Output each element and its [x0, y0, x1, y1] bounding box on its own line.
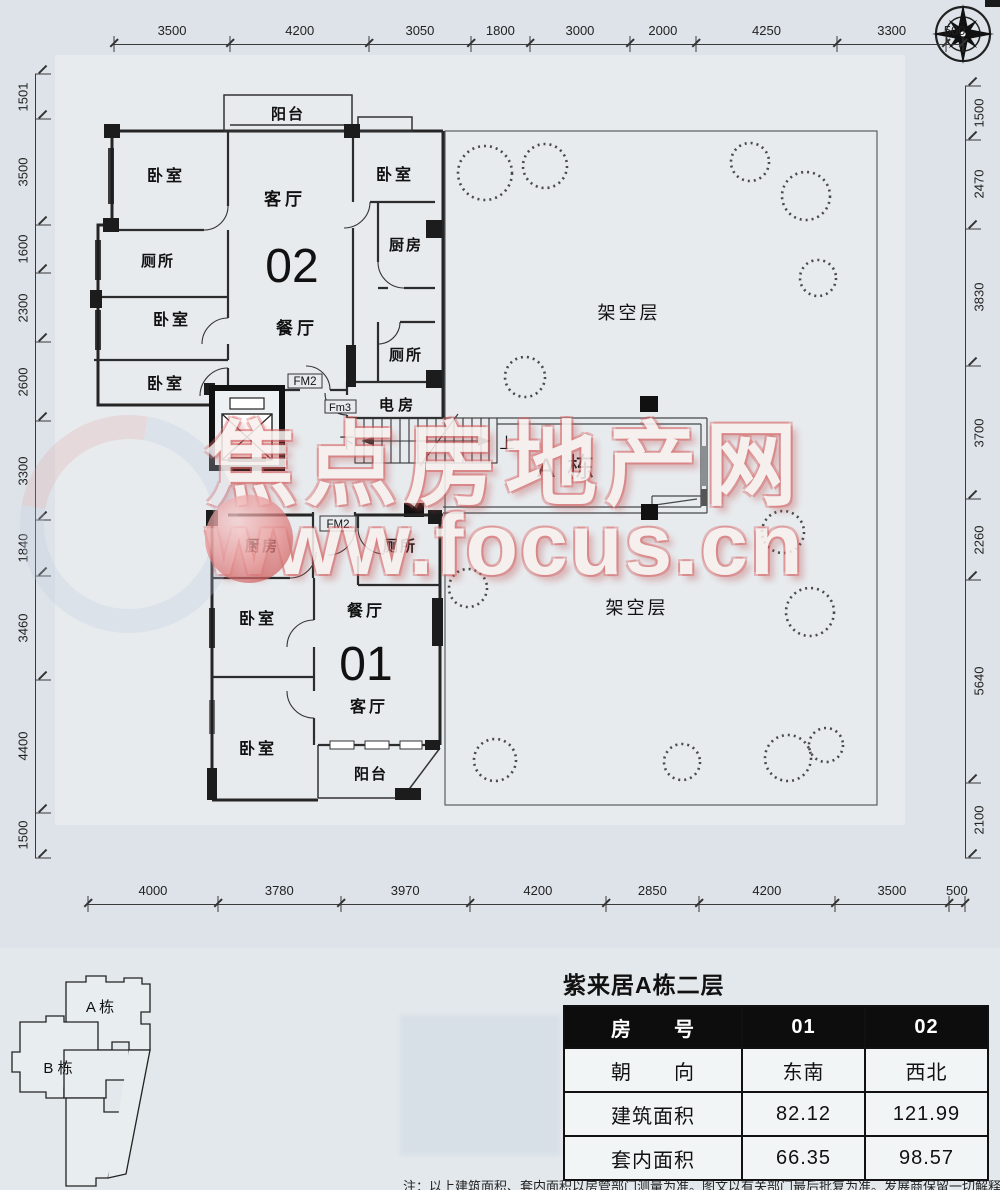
tree-icon [800, 260, 836, 296]
tree-icon [664, 744, 700, 780]
dimension-tick [965, 580, 981, 581]
orientation-02: 西北 [865, 1048, 988, 1092]
dimension-tick [965, 858, 981, 859]
table-header-row: 房 号 01 02 [564, 1006, 988, 1048]
dimension-tick [217, 896, 218, 912]
dimension-label: 2850 [638, 883, 667, 898]
net-area-01: 66.35 [742, 1136, 865, 1180]
tree-icon [458, 146, 512, 200]
dimension-label: 2300 [16, 293, 31, 322]
orientation-label: 朝 向 [564, 1048, 742, 1092]
dimension-label: 4250 [752, 23, 781, 38]
tree-icon [731, 143, 769, 181]
dimension-tick [88, 896, 89, 912]
dimension-tick [530, 36, 531, 52]
dimension-label: 4200 [523, 883, 552, 898]
gross-area-02: 121.99 [865, 1092, 988, 1136]
tree-icon [449, 569, 487, 607]
living-room-label: 客厅 [263, 189, 306, 209]
dimension-label: 3000 [565, 23, 594, 38]
bedroom-label: 卧室 [239, 739, 277, 758]
stilt-floor-label: 架空层 [606, 598, 669, 618]
dimension-label: 500 [944, 23, 966, 38]
dimension-tick [470, 36, 471, 52]
gross-area-01: 82.12 [742, 1092, 865, 1136]
tree-icon [782, 172, 830, 220]
dimension-tick [35, 575, 51, 576]
dimension-label: 3050 [405, 23, 434, 38]
dimension-label: 3700 [972, 418, 987, 447]
dimension-tick [35, 342, 51, 343]
dimension-label: 3780 [265, 883, 294, 898]
door-fm3-label: Fm3 [329, 402, 351, 414]
toilet-label: 厕所 [389, 347, 423, 364]
stilt-floor-label: 架空层 [598, 303, 661, 323]
dimension-chain-right: 1500247038303700226056402100 [946, 86, 984, 858]
tree-icon [809, 728, 843, 762]
table-row: 朝 向 东南 西北 [564, 1048, 988, 1092]
dimension-tick [35, 224, 51, 225]
bedroom-label: 卧室 [376, 165, 414, 184]
bedroom-label: 卧室 [147, 166, 185, 185]
bedroom-label: 卧室 [153, 310, 191, 329]
plan-title: 紫来居A栋二层 [563, 966, 725, 1000]
dimension-tick [698, 896, 699, 912]
stair-up-label: 上 [499, 435, 514, 452]
header-unit-02: 02 [865, 1006, 988, 1048]
door-label-boxes [288, 374, 356, 531]
dimension-label: 4000 [138, 883, 167, 898]
dimension-label: 4400 [16, 732, 31, 761]
dimension-tick [965, 896, 966, 912]
balcony-label: 阳台 [354, 765, 388, 783]
living-room-label: 客厅 [350, 697, 388, 716]
dimension-label: 1600 [16, 234, 31, 263]
dimension-label: 3500 [877, 883, 906, 898]
site-building-b-label: B 栋 [43, 1059, 72, 1077]
dimension-tick [340, 896, 341, 912]
bedroom-label: 卧室 [239, 609, 277, 628]
unit02-balcony-outline [224, 95, 412, 131]
stair-down-label: 下 [339, 435, 354, 452]
dimension-tick [835, 896, 836, 912]
dimension-tick [35, 680, 51, 681]
kitchen-label: 厨房 [245, 537, 279, 555]
net-area-02: 98.57 [865, 1136, 988, 1180]
dimension-label: 3970 [391, 883, 420, 898]
dimension-tick [629, 36, 630, 52]
unit-01-number: 01 [339, 638, 392, 691]
dimension-tick [230, 36, 231, 52]
dimension-tick [35, 520, 51, 521]
dimension-label: 1840 [16, 534, 31, 563]
dimension-tick [696, 36, 697, 52]
tree-icon [523, 144, 567, 188]
dimension-tick [114, 36, 115, 52]
dimension-tick [35, 119, 51, 120]
dimension-label: 5640 [972, 667, 987, 696]
header-room-no: 房 号 [564, 1006, 742, 1048]
dimension-label: 500 [946, 883, 968, 898]
tree-icon [474, 739, 516, 781]
dimension-tick [35, 858, 51, 859]
tree-icon [505, 357, 545, 397]
table-row: 建筑面积 82.12 121.99 [564, 1092, 988, 1136]
dimension-tick [965, 228, 981, 229]
door-fm2-label: FM2 [294, 376, 317, 388]
tree-icon [765, 735, 811, 781]
dimension-tick [965, 782, 981, 783]
toilet-label: 厕所 [383, 538, 417, 555]
site-key-plan: A 栋 B 栋 [8, 962, 208, 1190]
dimension-label: 3460 [16, 613, 31, 642]
dimension-tick [965, 86, 981, 87]
dimension-tick [369, 36, 370, 52]
tree-icon [786, 588, 834, 636]
dimension-label: 3830 [972, 283, 987, 312]
dimension-label: 2000 [648, 23, 677, 38]
dimension-label: 1800 [486, 23, 515, 38]
stilt-area-boundary [445, 131, 877, 805]
tree-icon [762, 511, 804, 553]
dimension-label: 1500 [16, 821, 31, 850]
table-row: 套内面积 66.35 98.57 [564, 1136, 988, 1180]
bedroom-label: 卧室 [147, 374, 185, 393]
ghost-print [400, 1015, 560, 1155]
electric-room-label: 电 房 [379, 396, 413, 414]
dining-room-label: 餐厅 [346, 601, 385, 620]
balcony-label: 阳台 [271, 105, 305, 123]
dimension-tick [948, 896, 949, 912]
dimension-label: 3500 [158, 23, 187, 38]
dimension-label: 3300 [877, 23, 906, 38]
dimension-chain-bottom: 4000378039704200285042003500500 [88, 882, 965, 920]
dimension-label: 4200 [752, 883, 781, 898]
door-fm2-label: FM2 [327, 519, 350, 531]
dimension-tick [965, 366, 981, 367]
floor-plan-page: 阳台 卧室 客厅 卧室 厕所 厨房 卧室 餐厅 厕所 卧室 02 电 房 FM2… [0, 0, 1000, 1190]
elevator [212, 388, 282, 468]
building-a-label: A 栋 [537, 453, 597, 483]
dining-room-label: 餐厅 [276, 318, 318, 338]
dimension-tick [35, 74, 51, 75]
orientation-01: 东南 [742, 1048, 865, 1092]
dimension-tick [946, 36, 947, 52]
dimension-label: 3300 [16, 456, 31, 485]
dimension-label: 3500 [16, 158, 31, 187]
dimension-tick [836, 36, 837, 52]
dimension-label: 1501 [16, 82, 31, 111]
dimension-tick [35, 420, 51, 421]
tree-icons [449, 143, 843, 781]
dimension-chain-left: 1501350016002300260033001840346044001500 [16, 74, 54, 858]
dimension-tick [965, 498, 981, 499]
dimension-label: 2100 [972, 806, 987, 835]
dimension-label: 2600 [16, 367, 31, 396]
toilet-label: 厕所 [141, 253, 175, 270]
dimension-tick [469, 896, 470, 912]
dimension-label: 2470 [972, 170, 987, 199]
dimension-label: 4200 [285, 23, 314, 38]
dimension-tick [965, 139, 981, 140]
gross-area-label: 建筑面积 [564, 1092, 742, 1136]
area-table: 房 号 01 02 朝 向 东南 西北 建筑面积 82.12 121.99 套内… [563, 1005, 989, 1181]
dimension-tick [606, 896, 607, 912]
dimension-chain-top: 35004200305018003000200042503300500 [114, 22, 963, 60]
dimension-line [965, 86, 966, 858]
dimension-tick [35, 273, 51, 274]
disclaimer-note: 注：以上建筑面积、套内面积以房管部门测量为准。图文以有关部门最后批复为准。发展商… [403, 1176, 1000, 1190]
staircase [355, 414, 497, 466]
site-building-a-label: A 栋 [86, 998, 114, 1016]
kitchen-label: 厨房 [389, 236, 423, 254]
dimension-line [35, 74, 36, 858]
net-area-label: 套内面积 [564, 1136, 742, 1180]
dimension-tick [35, 812, 51, 813]
dimension-label: 2260 [972, 525, 987, 554]
header-unit-01: 01 [742, 1006, 865, 1048]
unit-02-number: 02 [265, 240, 318, 293]
dimension-label: 1500 [972, 98, 987, 127]
dimension-tick [963, 36, 964, 52]
